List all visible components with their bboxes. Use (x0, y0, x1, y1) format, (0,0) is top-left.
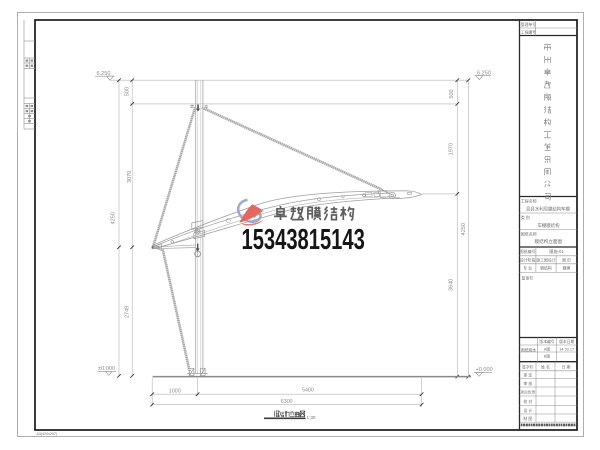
svg-text:4250: 4250 (461, 223, 467, 235)
svg-text:版本编号: 版本编号 (539, 339, 554, 344)
svg-text:5400: 5400 (302, 388, 314, 394)
svg-text:工程名称: 工程名称 (521, 198, 537, 204)
svg-text:膜结构立面图: 膜结构立面图 (535, 238, 563, 245)
svg-text:审 核: 审 核 (523, 381, 532, 386)
svg-text:B版: B版 (544, 354, 551, 359)
svg-text:图 页: 图 页 (562, 257, 571, 262)
svg-text:1000: 1000 (169, 389, 181, 395)
svg-text:图纸编号: 图纸编号 (520, 249, 536, 254)
svg-text:审 定: 审 定 (523, 373, 532, 378)
svg-text:3070: 3070 (127, 171, 133, 183)
svg-text:1970: 1970 (449, 143, 455, 155)
svg-text:版本日期: 版本日期 (559, 339, 574, 344)
svg-text:A3(420x297): A3(420x297) (37, 432, 58, 436)
svg-text:图纸版本: 图纸版本 (521, 348, 536, 353)
svg-text:姓 名: 姓 名 (541, 364, 550, 369)
svg-text:膜施-01: 膜施-01 (549, 248, 564, 255)
svg-text:管理单号: 管理单号 (521, 22, 536, 27)
svg-text:2749: 2749 (124, 306, 130, 318)
svg-text:500: 500 (449, 89, 455, 98)
svg-text:车棚膜结构: 车棚膜结构 (538, 222, 561, 229)
svg-text:校 对: 校 对 (523, 399, 532, 404)
svg-text:监审栏: 监审栏 (522, 275, 534, 281)
svg-text:15343815143: 15343815143 (242, 225, 365, 256)
svg-text:钢结构: 钢结构 (540, 266, 552, 271)
svg-text:500: 500 (125, 87, 131, 96)
svg-text:膜建: 膜建 (563, 266, 571, 271)
svg-text:专 业: 专 业 (523, 266, 532, 271)
svg-text:类 别: 类 别 (521, 214, 530, 220)
svg-text:A版: A版 (544, 347, 551, 352)
svg-text:项目负责: 项目负责 (520, 390, 535, 395)
svg-text:6300: 6300 (281, 399, 293, 405)
svg-text:4250: 4250 (110, 212, 116, 224)
svg-text:14.03.17: 14.03.17 (559, 348, 574, 352)
svg-text:1:30: 1:30 (307, 415, 316, 420)
svg-text:工程编号: 工程编号 (521, 30, 536, 35)
svg-text:息县水利局膜结构车棚: 息县水利局膜结构车棚 (526, 206, 571, 213)
svg-text:设计阶段: 设计阶段 (520, 257, 536, 262)
svg-text:施工图设计: 施工图设计 (536, 257, 556, 262)
svg-text:日 期: 日 期 (562, 364, 571, 369)
svg-text:签字栏: 签字栏 (522, 364, 534, 369)
svg-text:图纸名称: 图纸名称 (521, 231, 537, 237)
svg-text:设 计: 设 计 (523, 408, 532, 413)
svg-text:3640: 3640 (448, 279, 454, 291)
svg-text:制 图: 制 图 (523, 416, 532, 421)
